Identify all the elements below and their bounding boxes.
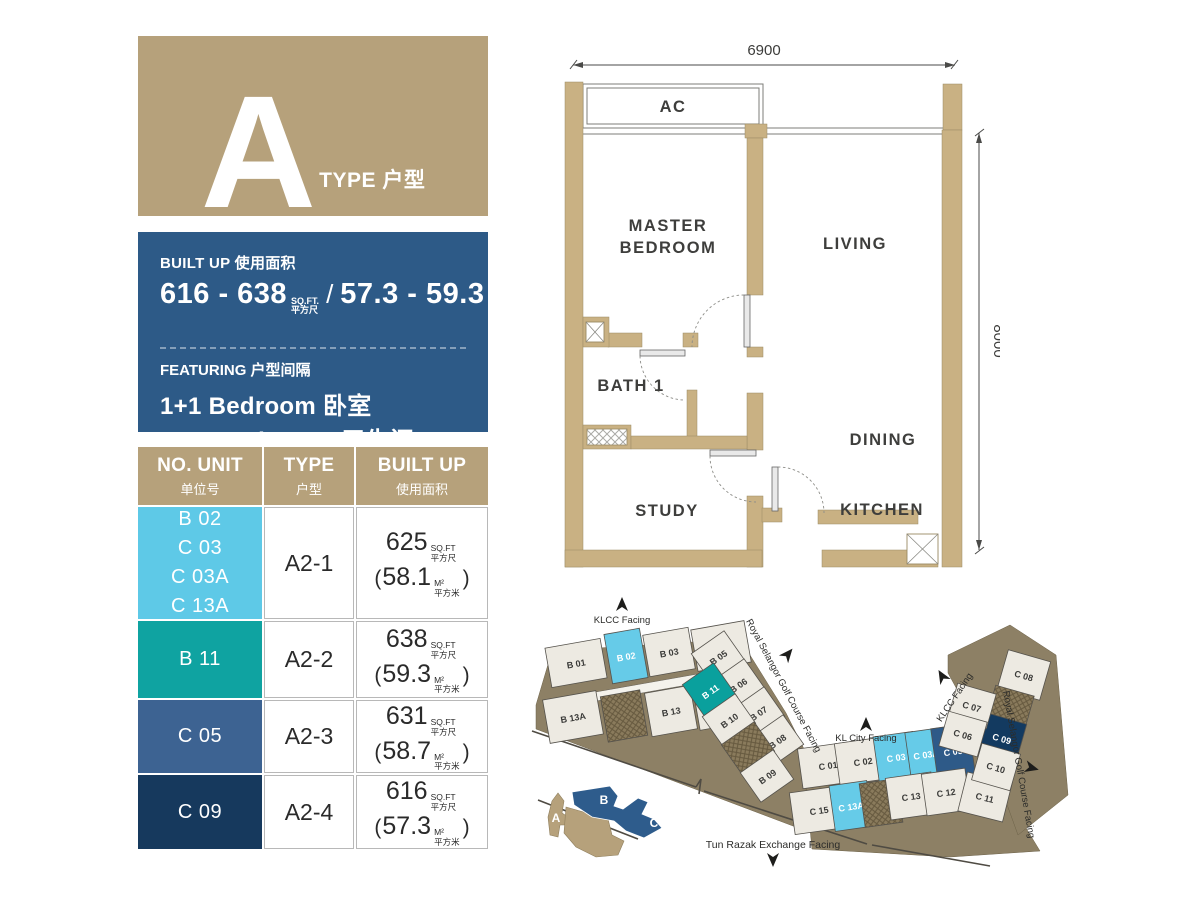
sqft-unit-stack: SQ.FT. 平方尺	[291, 297, 319, 316]
col-header-no-unit: NO. UNIT 单位号	[138, 447, 262, 505]
room-bath: BATH 1	[597, 377, 664, 395]
feature-bedroom: 1+1 Bedroom 卧室	[160, 386, 466, 421]
sqm-unit-stack: M² 平方米	[434, 753, 460, 773]
sqm-unit-cn: 平方米	[488, 306, 499, 334]
close-paren: )	[463, 664, 470, 688]
sqm-unit-stack: M² 平方米	[434, 676, 460, 696]
table-cell-type: A2-3	[264, 700, 354, 773]
dimension-height-label: 8000	[990, 324, 1000, 357]
room-ac: AC	[660, 98, 687, 116]
unit-code: B 02	[178, 505, 221, 534]
unit-code: B 11	[179, 645, 221, 674]
table-cell-type: A2-1	[264, 507, 354, 619]
sqm-range: 57.3 - 59.3	[340, 278, 484, 311]
type-suffix-label: TYPE 户型	[319, 164, 425, 194]
close-paren: )	[463, 741, 470, 765]
built-up-panel: BUILT UP 使用面积 616 - 638 SQ.FT. 平方尺 / 57.…	[138, 232, 488, 432]
header-cn: 户型	[296, 479, 322, 498]
floor-plan: 6900 8000	[555, 38, 1000, 600]
facing-kl-city: KL City Facing	[835, 733, 896, 744]
core-block	[600, 690, 647, 742]
sqft-range: 616 - 638	[160, 278, 287, 311]
sqm-unit-cn: 平方米	[434, 838, 460, 848]
north-arrow-icon	[616, 597, 628, 611]
facing-trx: Tun Razak Exchange Facing	[706, 839, 841, 851]
room-dining: DINING	[850, 431, 917, 449]
sqft-unit-cn: 平方尺	[431, 554, 457, 564]
sqft-unit-stack: SQ.FT 平方尺	[431, 641, 457, 661]
sqft-unit-stack: SQ.FT 平方尺	[431, 544, 457, 564]
table-row-units-a2-4: C 09	[138, 775, 262, 849]
table-cell-built-up: 616 SQ.FT 平方尺 ( 57.3 M² 平方米 )	[356, 775, 488, 849]
unit-code: C 03	[178, 534, 222, 563]
table-row-units-a2-2: B 11	[138, 621, 262, 698]
north-arrow-icon	[779, 645, 797, 663]
sqm-unit-cn: 平方米	[434, 762, 460, 772]
sqft-unit-cn: 平方尺	[431, 651, 457, 661]
sqft-unit-stack: SQ.FT 平方尺	[431, 718, 457, 738]
sqm-unit-stack: M² 平方米	[434, 828, 460, 848]
header-en: NO. UNIT	[157, 455, 243, 477]
built-up-range: 616 - 638 SQ.FT. 平方尺 / 57.3 - 59.3 M² 平方…	[160, 278, 466, 334]
room-living: LIVING	[823, 235, 887, 253]
open-paren: (	[374, 664, 381, 688]
sqm-unit-cn: 平方米	[434, 589, 460, 599]
open-paren: (	[374, 816, 381, 840]
table-row-units-a2-3: C 05	[138, 700, 262, 773]
table-cell-type: A2-4	[264, 775, 354, 849]
header-cn: 单位号	[180, 479, 219, 498]
built-up-sqft: 616	[386, 777, 428, 806]
sqft-unit-stack: SQ.FT 平方尺	[431, 793, 457, 813]
unit-table: NO. UNIT 单位号 TYPE 户型 BUILT UP 使用面积 B 02 …	[138, 447, 488, 849]
dashed-divider	[160, 347, 466, 349]
sqm-unit-stack: M² 平方米	[488, 297, 499, 335]
key-letter-b: B	[600, 793, 609, 807]
built-up-sqft: 638	[386, 625, 428, 654]
unit-code: C 13A	[171, 592, 229, 621]
dimension-top: 6900	[570, 42, 958, 69]
close-paren: )	[463, 816, 470, 840]
table-cell-type: A2-2	[264, 621, 354, 698]
sqm-unit-stack: M² 平方米	[434, 579, 460, 599]
header-en: BUILT UP	[378, 455, 467, 477]
walls	[565, 82, 962, 567]
built-up-sqm: 58.1	[382, 563, 431, 592]
table-cell-built-up: 625 SQ.FT 平方尺 ( 58.1 M² 平方米 )	[356, 507, 488, 619]
type-letter: A	[201, 88, 314, 216]
table-cell-built-up: 638 SQ.FT 平方尺 ( 59.3 M² 平方米 )	[356, 621, 488, 698]
sqft-unit-cn: 平方尺	[431, 728, 457, 738]
featuring-label: FEATURING 户型间隔	[160, 359, 466, 380]
doors	[640, 295, 824, 513]
site-plan: B 01 B 02 B 03 B 03A B 13A B 13 B 12 B 0…	[520, 595, 1100, 890]
north-arrow-icon	[860, 717, 872, 731]
header-en: TYPE	[284, 455, 335, 477]
open-paren: (	[374, 567, 381, 591]
built-up-sqft: 631	[386, 702, 428, 731]
room-master-line1: MASTER	[629, 217, 708, 235]
facing-klcc-b: KLCC Facing	[594, 615, 651, 626]
col-header-type: TYPE 户型	[264, 447, 354, 505]
built-up-sqft: 625	[386, 528, 428, 557]
built-up-sqm: 58.7	[382, 737, 431, 766]
room-master-line2: BEDROOM	[620, 239, 717, 257]
unit-code: C 09	[178, 798, 222, 827]
built-up-label: BUILT UP 使用面积	[160, 252, 466, 273]
room-kitchen: KITCHEN	[840, 501, 924, 519]
dimension-right: 8000	[975, 129, 1000, 554]
key-letter-a: A	[552, 811, 561, 825]
close-paren: )	[463, 567, 470, 591]
header-cn: 使用面积	[396, 479, 448, 498]
brochure-page: A TYPE 户型 BUILT UP 使用面积 616 - 638 SQ.FT.…	[0, 0, 1200, 900]
type-card: A TYPE 户型	[138, 36, 488, 216]
table-row-units-a2-1: B 02 C 03 C 03A C 13A	[138, 507, 262, 619]
sqft-unit-cn: 平方尺	[431, 803, 457, 813]
sqm-unit-cn: 平方米	[434, 685, 460, 695]
col-header-built-up: BUILT UP 使用面积	[356, 447, 488, 505]
built-up-sqm: 57.3	[382, 812, 431, 841]
dimension-width-label: 6900	[747, 42, 780, 59]
open-paren: (	[374, 741, 381, 765]
range-slash: /	[326, 279, 333, 310]
sqft-unit-cn: 平方尺	[291, 306, 319, 315]
key-letter-c: C	[650, 816, 659, 830]
unit-code: C 05	[178, 722, 222, 751]
room-study: STUDY	[635, 502, 698, 520]
built-up-sqm: 59.3	[382, 660, 431, 689]
table-cell-built-up: 631 SQ.FT 平方尺 ( 58.7 M² 平方米 )	[356, 700, 488, 773]
unit-code: C 03A	[171, 563, 229, 592]
key-map: A B C	[548, 786, 662, 857]
south-arrow-icon	[767, 853, 779, 867]
